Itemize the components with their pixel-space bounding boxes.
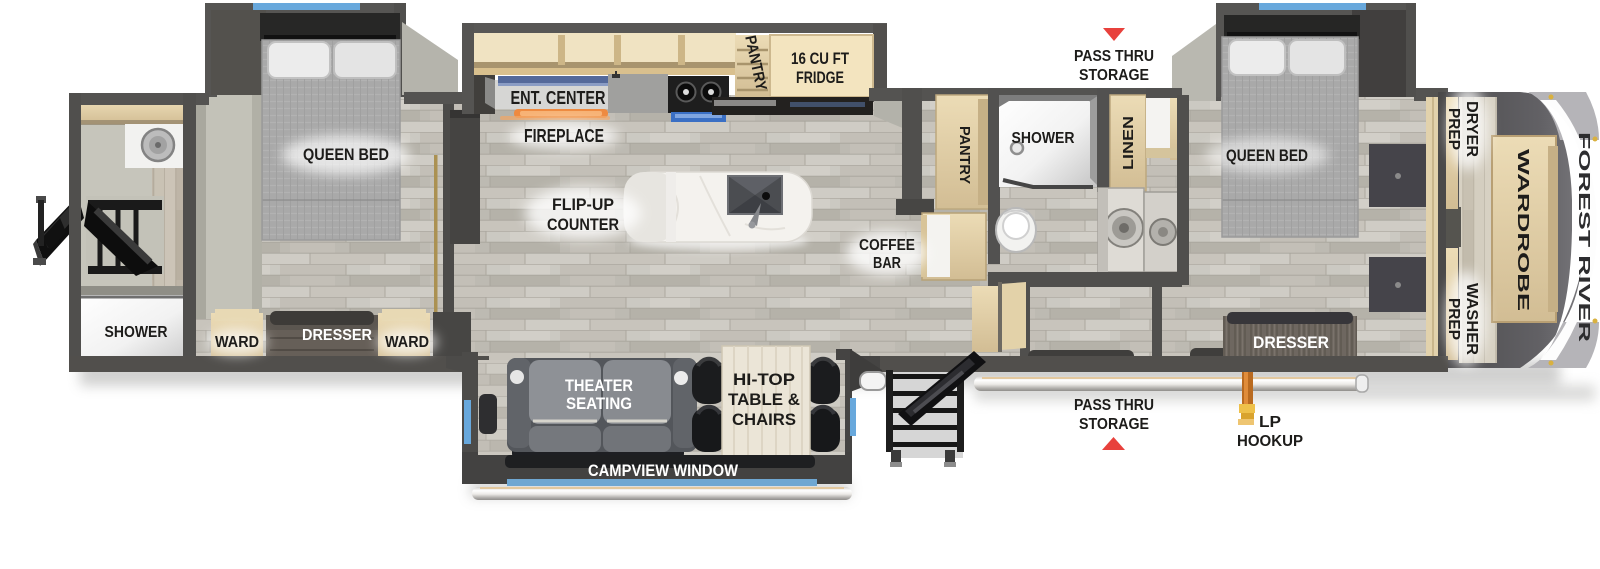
svg-text:HOOKUP: HOOKUP (1237, 433, 1303, 450)
svg-text:CAMPVIEW WINDOW: CAMPVIEW WINDOW (588, 462, 738, 480)
svg-text:PANTRY: PANTRY (956, 126, 973, 184)
svg-text:DRYER: DRYER (1463, 101, 1480, 157)
svg-text:CHAIRS: CHAIRS (732, 411, 796, 429)
svg-text:TABLE &: TABLE & (728, 391, 800, 409)
svg-text:STORAGE: STORAGE (1079, 416, 1149, 433)
svg-text:WARD: WARD (385, 334, 429, 351)
svg-text:LP: LP (1259, 414, 1281, 431)
svg-text:PREP: PREP (1445, 108, 1462, 150)
svg-text:WASHER: WASHER (1463, 283, 1480, 355)
svg-text:STORAGE: STORAGE (1079, 67, 1149, 84)
svg-text:ENT. CENTER: ENT. CENTER (511, 88, 606, 108)
svg-text:WARD: WARD (215, 334, 259, 351)
svg-text:FIREPLACE: FIREPLACE (524, 126, 604, 146)
svg-text:HI-TOP: HI-TOP (733, 371, 795, 389)
svg-text:SEATING: SEATING (566, 395, 632, 413)
svg-text:PASS THRU: PASS THRU (1074, 397, 1154, 414)
svg-text:LINEN: LINEN (1120, 116, 1137, 170)
svg-text:DRESSER: DRESSER (302, 327, 372, 344)
svg-text:BAR: BAR (873, 255, 901, 272)
svg-text:PASS THRU: PASS THRU (1074, 48, 1154, 65)
svg-text:FOREST RIVER: FOREST RIVER (1575, 132, 1592, 342)
svg-text:DRESSER: DRESSER (1253, 334, 1329, 352)
svg-text:FRIDGE: FRIDGE (796, 68, 844, 87)
svg-text:QUEEN BED: QUEEN BED (303, 145, 389, 164)
svg-text:16 CU FT: 16 CU FT (791, 49, 849, 68)
svg-text:WARDROBE: WARDROBE (1514, 149, 1531, 311)
svg-text:COFFEE: COFFEE (859, 237, 915, 254)
svg-text:QUEEN BED: QUEEN BED (1226, 146, 1308, 165)
svg-text:THEATER: THEATER (565, 377, 633, 395)
svg-text:COUNTER: COUNTER (547, 216, 619, 234)
svg-text:PREP: PREP (1445, 298, 1462, 340)
svg-text:FLIP-UP: FLIP-UP (552, 196, 614, 214)
svg-text:SHOWER: SHOWER (1012, 130, 1075, 147)
svg-text:SHOWER: SHOWER (105, 324, 168, 341)
